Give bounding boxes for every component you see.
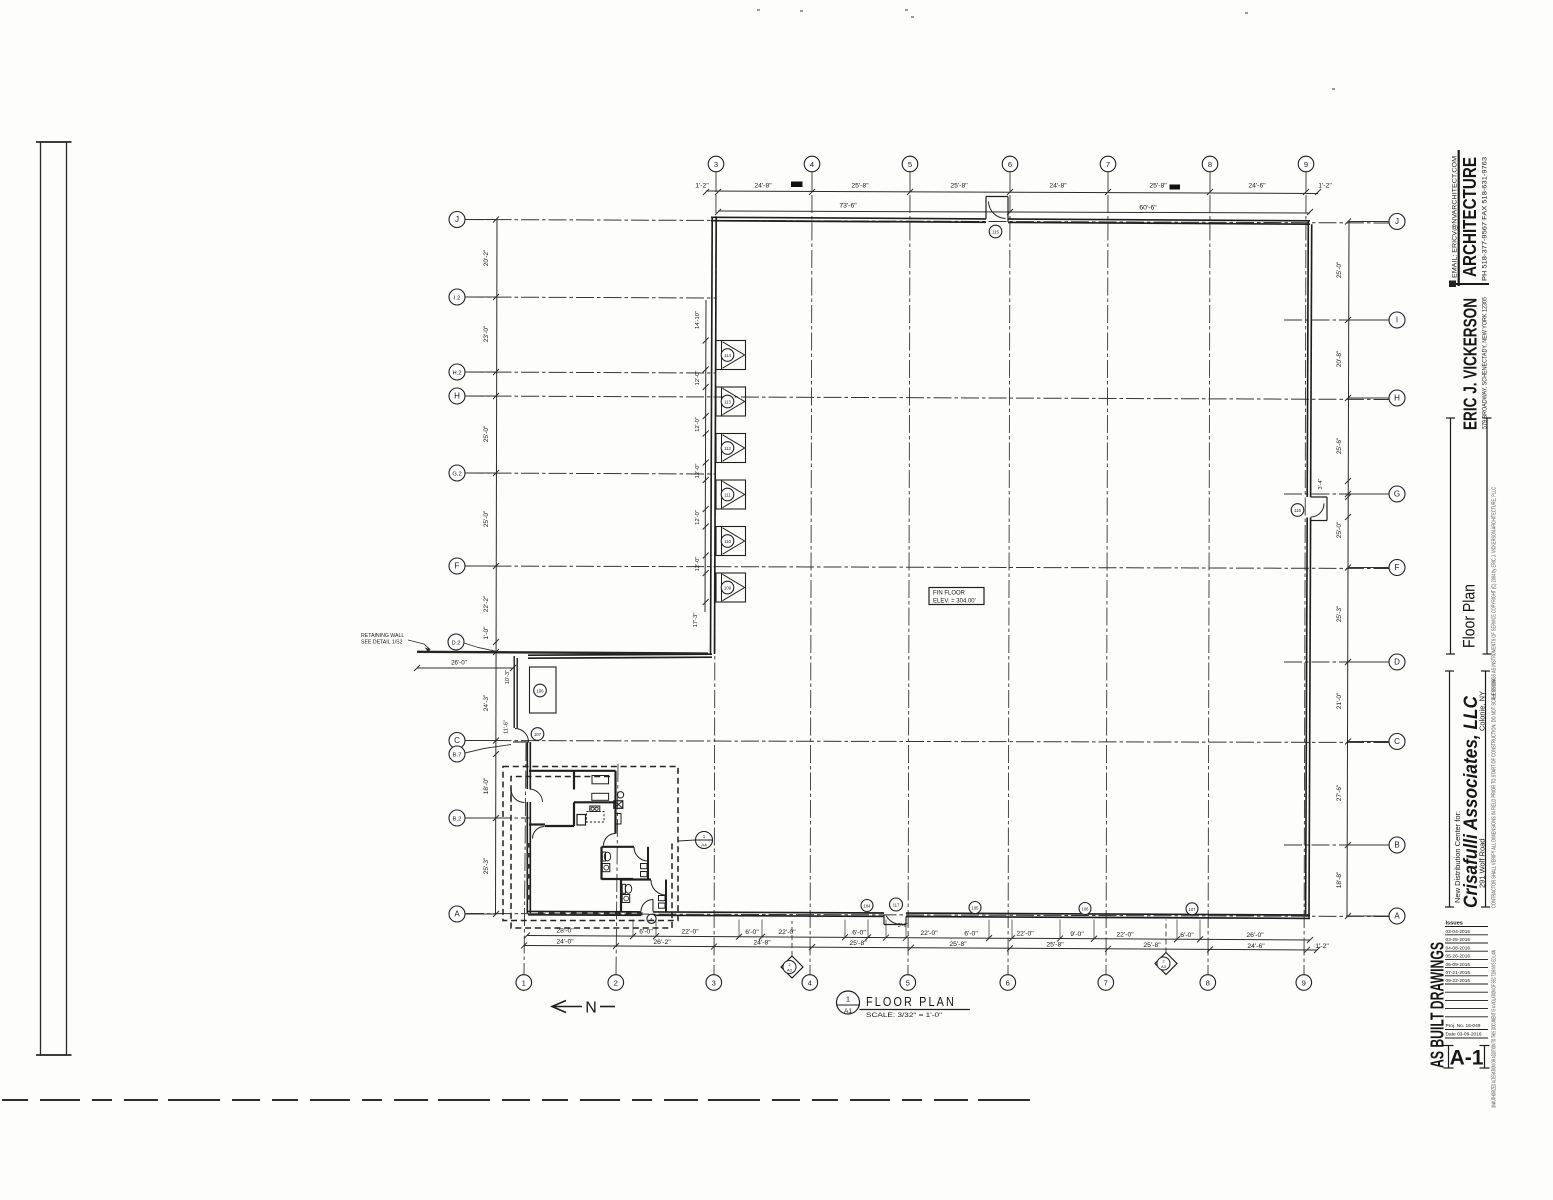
svg-text:1'-2": 1'-2" — [1315, 943, 1329, 950]
svg-text:23'-0": 23'-0" — [483, 325, 490, 342]
svg-text:105: 105 — [972, 906, 980, 911]
svg-text:1: 1 — [522, 978, 526, 987]
svg-text:9: 9 — [1304, 160, 1308, 169]
svg-text:D: D — [1394, 658, 1400, 667]
svg-text:60'-6": 60'-6" — [1139, 205, 1157, 212]
svg-text:B.7: B.7 — [453, 752, 462, 758]
svg-text:113: 113 — [724, 400, 731, 405]
svg-text:20'-8": 20'-8" — [1336, 350, 1343, 367]
svg-text:A: A — [1394, 912, 1400, 921]
svg-text:ERIC J. VICKERSON: ERIC J. VICKERSON — [1461, 298, 1481, 430]
svg-text:25'-8": 25'-8" — [1046, 941, 1064, 948]
svg-text:2: 2 — [1162, 959, 1164, 963]
svg-text:A4: A4 — [701, 843, 707, 848]
svg-text:09-22-2016: 09-22-2016 — [1446, 978, 1471, 984]
svg-text:I: I — [1396, 316, 1398, 325]
svg-text:9: 9 — [1302, 978, 1306, 987]
svg-text:24'-8": 24'-8" — [1049, 183, 1067, 190]
svg-text:25'-6": 25'-6" — [1336, 437, 1343, 454]
svg-text:6'-0": 6'-0" — [639, 928, 653, 935]
svg-text:25'-3": 25'-3" — [483, 857, 490, 874]
svg-text:7: 7 — [1106, 160, 1110, 169]
svg-text:114: 114 — [724, 353, 731, 358]
svg-text:17'-3": 17'-3" — [693, 613, 699, 628]
svg-text:A3: A3 — [1161, 965, 1166, 969]
svg-text:A3: A3 — [787, 969, 792, 973]
svg-text:I.2: I.2 — [454, 296, 460, 302]
svg-text:07-21-2016: 07-21-2016 — [1446, 970, 1471, 976]
svg-text:4: 4 — [808, 978, 812, 987]
svg-text:F: F — [1395, 563, 1400, 572]
svg-text:1'-2": 1'-2" — [695, 183, 709, 190]
svg-text:6'-0": 6'-0" — [852, 930, 866, 937]
svg-text:26'-0": 26'-0" — [1246, 932, 1264, 939]
svg-text:3: 3 — [714, 160, 718, 169]
svg-text:1: 1 — [846, 995, 850, 1004]
svg-text:24'-6": 24'-6" — [1248, 183, 1266, 190]
svg-text:18'-8": 18'-8" — [1336, 871, 1343, 888]
svg-text:24'-8": 24'-8" — [753, 940, 771, 947]
svg-text:25'-8": 25'-8" — [1143, 942, 1161, 949]
svg-text:106: 106 — [1082, 907, 1090, 912]
svg-text:ARCHITECTURE: ARCHITECTURE — [1459, 157, 1480, 277]
svg-text:FLOOR PLAN: FLOOR PLAN — [866, 994, 956, 1009]
svg-text:Floor Plan: Floor Plan — [1460, 584, 1479, 648]
svg-text:G: G — [1394, 490, 1400, 499]
svg-text:04-08-2016: 04-08-2016 — [1446, 945, 1471, 951]
svg-text:D.2: D.2 — [451, 640, 460, 646]
svg-text:22'-0": 22'-0" — [778, 929, 796, 936]
svg-text:12'-0": 12'-0" — [695, 371, 701, 386]
svg-text:12'-0": 12'-0" — [695, 417, 701, 432]
svg-text:73'-6": 73'-6" — [839, 203, 857, 210]
svg-text:H.2: H.2 — [452, 371, 461, 377]
svg-text:A: A — [454, 910, 460, 919]
svg-text:6: 6 — [1006, 978, 1010, 987]
svg-text:J: J — [455, 215, 459, 224]
svg-text:112: 112 — [724, 446, 731, 451]
svg-text:9'-0": 9'-0" — [1070, 931, 1084, 938]
svg-text:4: 4 — [810, 160, 814, 169]
svg-text:22'-0": 22'-0" — [920, 930, 938, 937]
svg-text:A1: A1 — [844, 1008, 852, 1015]
svg-text:25'-0": 25'-0" — [1336, 521, 1343, 538]
svg-text:5: 5 — [908, 160, 912, 169]
svg-text:05-26-2016: 05-26-2016 — [1446, 954, 1471, 960]
svg-text:3'-4": 3'-4" — [1318, 479, 1324, 490]
svg-text:N: N — [585, 1000, 597, 1017]
svg-text:8: 8 — [1206, 978, 1210, 987]
svg-text:SCALE: 3/32" = 1'-0": SCALE: 3/32" = 1'-0" — [866, 1012, 943, 1019]
svg-text:B.2: B.2 — [453, 817, 462, 823]
svg-text:3: 3 — [712, 978, 716, 987]
svg-text:C: C — [454, 736, 460, 745]
svg-text:22'-0": 22'-0" — [681, 929, 699, 936]
svg-text:14'-10": 14'-10" — [695, 311, 701, 329]
svg-text:12'-0": 12'-0" — [695, 510, 701, 525]
svg-text:G.2: G.2 — [452, 472, 461, 478]
svg-text:ELEV. = 304.00': ELEV. = 304.00' — [933, 599, 976, 605]
svg-text:C: C — [1394, 737, 1400, 746]
svg-text:J: J — [1395, 217, 1399, 226]
svg-text:22'-0": 22'-0" — [1016, 931, 1034, 938]
svg-text:25'-8": 25'-8" — [851, 183, 869, 190]
svg-text:Date 03-09-2016: Date 03-09-2016 — [1446, 1032, 1482, 1038]
svg-text:H: H — [454, 392, 460, 401]
svg-text:25'-8": 25'-8" — [849, 940, 867, 947]
svg-text:06-09-2016: 06-09-2016 — [1446, 962, 1471, 968]
svg-text:117: 117 — [893, 903, 900, 908]
svg-text:110: 110 — [724, 539, 731, 544]
svg-text:22'-2": 22'-2" — [483, 595, 490, 612]
svg-text:7: 7 — [1104, 978, 1108, 987]
svg-text:25'-3": 25'-3" — [1336, 605, 1343, 622]
svg-text:2: 2 — [614, 978, 618, 987]
svg-text:RETAINING WALL: RETAINING WALL — [361, 633, 404, 639]
svg-text:5: 5 — [906, 978, 910, 987]
svg-text:03-04-2016: 03-04-2016 — [1446, 929, 1471, 935]
svg-text:291 Wolf Road: 291 Wolf Road — [1478, 839, 1487, 888]
svg-text:26'-0": 26'-0" — [451, 660, 467, 667]
svg-text:25'-0": 25'-0" — [483, 510, 490, 527]
svg-text:03-25-2016: 03-25-2016 — [1446, 937, 1471, 943]
svg-text:115: 115 — [992, 230, 999, 235]
svg-text:6: 6 — [1008, 160, 1012, 169]
svg-text:UNAUTHORIZED ALTERATION OR ADD: UNAUTHORIZED ALTERATION OR ADDITION TO T… — [1492, 950, 1498, 1108]
svg-text:25'-8": 25'-8" — [949, 941, 967, 948]
svg-text:B: B — [1394, 841, 1399, 850]
svg-text:24'-3": 24'-3" — [483, 694, 490, 711]
svg-text:CONTRACTOR SHALL VERIFY ALL DI: CONTRACTOR SHALL VERIFY ALL DIMENSIONS I… — [1492, 678, 1498, 908]
svg-text:21'-0": 21'-0" — [1336, 692, 1343, 709]
svg-text:FIN FLOOR: FIN FLOOR — [933, 591, 966, 597]
svg-text:12'-0": 12'-0" — [695, 557, 701, 572]
svg-text:26'-2": 26'-2" — [653, 939, 671, 946]
svg-text:PH 518-377-9567 FAX 518-63: PH 518-377-9567 FAX 518-631-9763 — [1483, 156, 1489, 281]
svg-text:Proj. No. 16-049: Proj. No. 16-049 — [1446, 1023, 1481, 1029]
svg-text:116: 116 — [1294, 508, 1301, 513]
svg-text:2: 2 — [788, 963, 790, 967]
svg-text:8: 8 — [1208, 160, 1212, 169]
svg-text:27'-6": 27'-6" — [1336, 784, 1343, 801]
svg-text:24'-6": 24'-6" — [1247, 943, 1265, 950]
svg-text:18'-0": 18'-0" — [483, 777, 490, 794]
svg-text:24'-8": 24'-8" — [754, 183, 772, 190]
svg-text:EMAIL: ERICV@NVARCHITECT.COM: EMAIL: ERICV@NVARCHITECT.COM — [1453, 156, 1459, 278]
svg-text:6'-0": 6'-0" — [964, 930, 978, 937]
svg-text:12'-0": 12'-0" — [695, 464, 701, 479]
svg-text:25'-0": 25'-0" — [483, 425, 490, 442]
svg-text:Colonie, NY: Colonie, NY — [1478, 691, 1487, 731]
svg-text:H: H — [1394, 394, 1400, 403]
svg-text:25'-8": 25'-8" — [950, 183, 968, 190]
svg-text:10'-3": 10'-3" — [505, 670, 511, 684]
svg-text:11'-6": 11'-6" — [504, 720, 510, 734]
svg-text:SEE DETAIL 1/S2: SEE DETAIL 1/S2 — [361, 640, 403, 646]
svg-text:F: F — [455, 562, 460, 571]
svg-text:6'-0": 6'-0" — [1180, 932, 1194, 939]
svg-text:THESE DWGS AS INSTRUMENTS OF S: THESE DWGS AS INSTRUMENTS OF SERVICE COP… — [1492, 487, 1498, 700]
svg-text:20'-2": 20'-2" — [483, 249, 490, 266]
svg-text:25'-8": 25'-8" — [1149, 183, 1167, 190]
svg-text:111: 111 — [724, 493, 731, 498]
svg-text:106: 106 — [536, 689, 544, 694]
svg-text:1'-2": 1'-2" — [1318, 183, 1332, 190]
svg-text:107: 107 — [1189, 907, 1197, 912]
svg-text:22'-0": 22'-0" — [1116, 931, 1134, 938]
svg-text:Issues: Issues — [1446, 921, 1463, 927]
svg-text:28'-0": 28'-0" — [556, 928, 574, 935]
svg-text:AS BUILT DRAWINGS: AS BUILT DRAWINGS — [1428, 942, 1448, 1068]
svg-text:109: 109 — [724, 586, 732, 591]
svg-text:25'-0": 25'-0" — [1336, 261, 1343, 278]
svg-text:1'-0": 1'-0" — [483, 626, 490, 640]
svg-text:6'-0": 6'-0" — [745, 929, 759, 936]
svg-text:104: 104 — [864, 904, 872, 909]
svg-text:24'-0": 24'-0" — [556, 938, 574, 945]
svg-text:579 BROADWAY, SCHENECTADY, NEW: 579 BROADWAY, SCHENECTADY, NEW YORK 1230… — [1483, 296, 1489, 429]
svg-text:107: 107 — [534, 732, 542, 737]
svg-text:A-1: A-1 — [1450, 1047, 1484, 1070]
